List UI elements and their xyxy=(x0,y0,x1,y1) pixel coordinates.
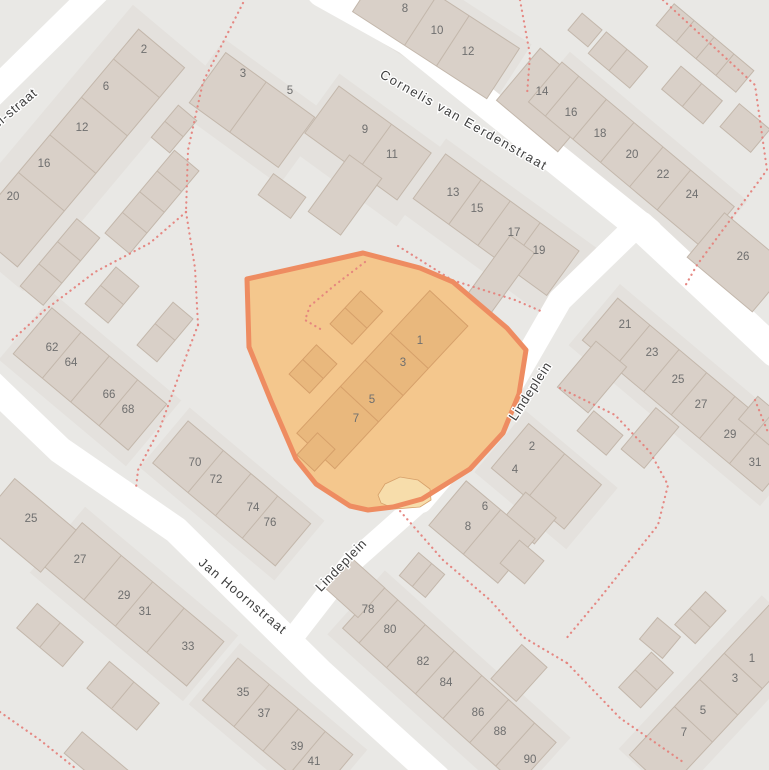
house-number: 24 xyxy=(686,189,699,201)
house-number: 20 xyxy=(626,149,639,161)
house-number: 86 xyxy=(472,707,485,719)
house-number: 15 xyxy=(471,203,484,215)
house-number: 6 xyxy=(103,81,109,93)
map-canvas[interactable]: 2612162035911131517198101214161820222426… xyxy=(0,0,769,770)
house-number: 25 xyxy=(25,513,38,525)
house-number: 74 xyxy=(247,502,260,514)
house-number: 12 xyxy=(462,46,475,58)
house-number: 33 xyxy=(182,641,195,653)
house-number: 7 xyxy=(353,413,359,425)
house-number: 68 xyxy=(122,404,135,416)
house-number: 27 xyxy=(74,554,87,566)
house-number: 8 xyxy=(465,521,471,533)
house-number: 1 xyxy=(417,335,423,347)
house-number: 88 xyxy=(494,726,507,738)
house-number: 78 xyxy=(362,604,375,616)
house-number: 29 xyxy=(118,590,131,602)
house-number: 5 xyxy=(369,394,375,406)
house-number: 31 xyxy=(139,606,152,618)
house-number: 3 xyxy=(240,68,246,80)
house-number: 21 xyxy=(619,319,632,331)
house-number: 2 xyxy=(141,44,147,56)
house-number: 72 xyxy=(210,474,223,486)
house-number: 25 xyxy=(672,374,685,386)
house-number: 19 xyxy=(533,245,546,257)
house-number: 26 xyxy=(737,251,750,263)
house-number: 5 xyxy=(700,705,706,717)
house-number: 3 xyxy=(400,357,406,369)
house-number: 29 xyxy=(724,429,737,441)
house-number: 13 xyxy=(447,187,460,199)
house-number: 84 xyxy=(440,677,453,689)
house-number: 1 xyxy=(749,653,755,665)
house-number: 12 xyxy=(76,122,89,134)
house-number: 35 xyxy=(237,687,250,699)
house-number: 66 xyxy=(103,389,116,401)
house-number: 4 xyxy=(512,464,519,476)
house-number: 23 xyxy=(646,347,659,359)
house-number: 10 xyxy=(431,25,444,37)
house-number: 31 xyxy=(749,457,762,469)
house-number: 8 xyxy=(402,3,408,15)
house-number: 39 xyxy=(291,741,304,753)
house-number: 64 xyxy=(65,357,78,369)
house-number: 27 xyxy=(695,399,708,411)
house-number: 9 xyxy=(362,124,368,136)
house-number: 16 xyxy=(565,107,578,119)
house-number: 5 xyxy=(287,85,293,97)
map-viewport[interactable]: 2612162035911131517198101214161820222426… xyxy=(0,0,769,770)
house-number: 22 xyxy=(657,169,670,181)
house-number: 11 xyxy=(386,149,398,161)
house-number: 2 xyxy=(529,441,535,453)
house-number: 6 xyxy=(482,501,488,513)
house-number: 76 xyxy=(264,517,277,529)
house-number: 80 xyxy=(384,624,397,636)
house-number: 62 xyxy=(46,342,59,354)
house-number: 90 xyxy=(524,754,537,766)
house-number: 37 xyxy=(258,708,271,720)
house-number: 18 xyxy=(594,128,607,140)
house-number: 82 xyxy=(417,656,430,668)
house-number: 14 xyxy=(536,86,549,98)
house-number: 70 xyxy=(189,457,202,469)
house-number: 41 xyxy=(308,756,321,768)
house-number: 20 xyxy=(7,191,20,203)
house-number: 17 xyxy=(508,227,521,239)
house-number: 7 xyxy=(681,727,687,739)
house-number: 16 xyxy=(38,158,51,170)
house-number: 3 xyxy=(732,673,738,685)
